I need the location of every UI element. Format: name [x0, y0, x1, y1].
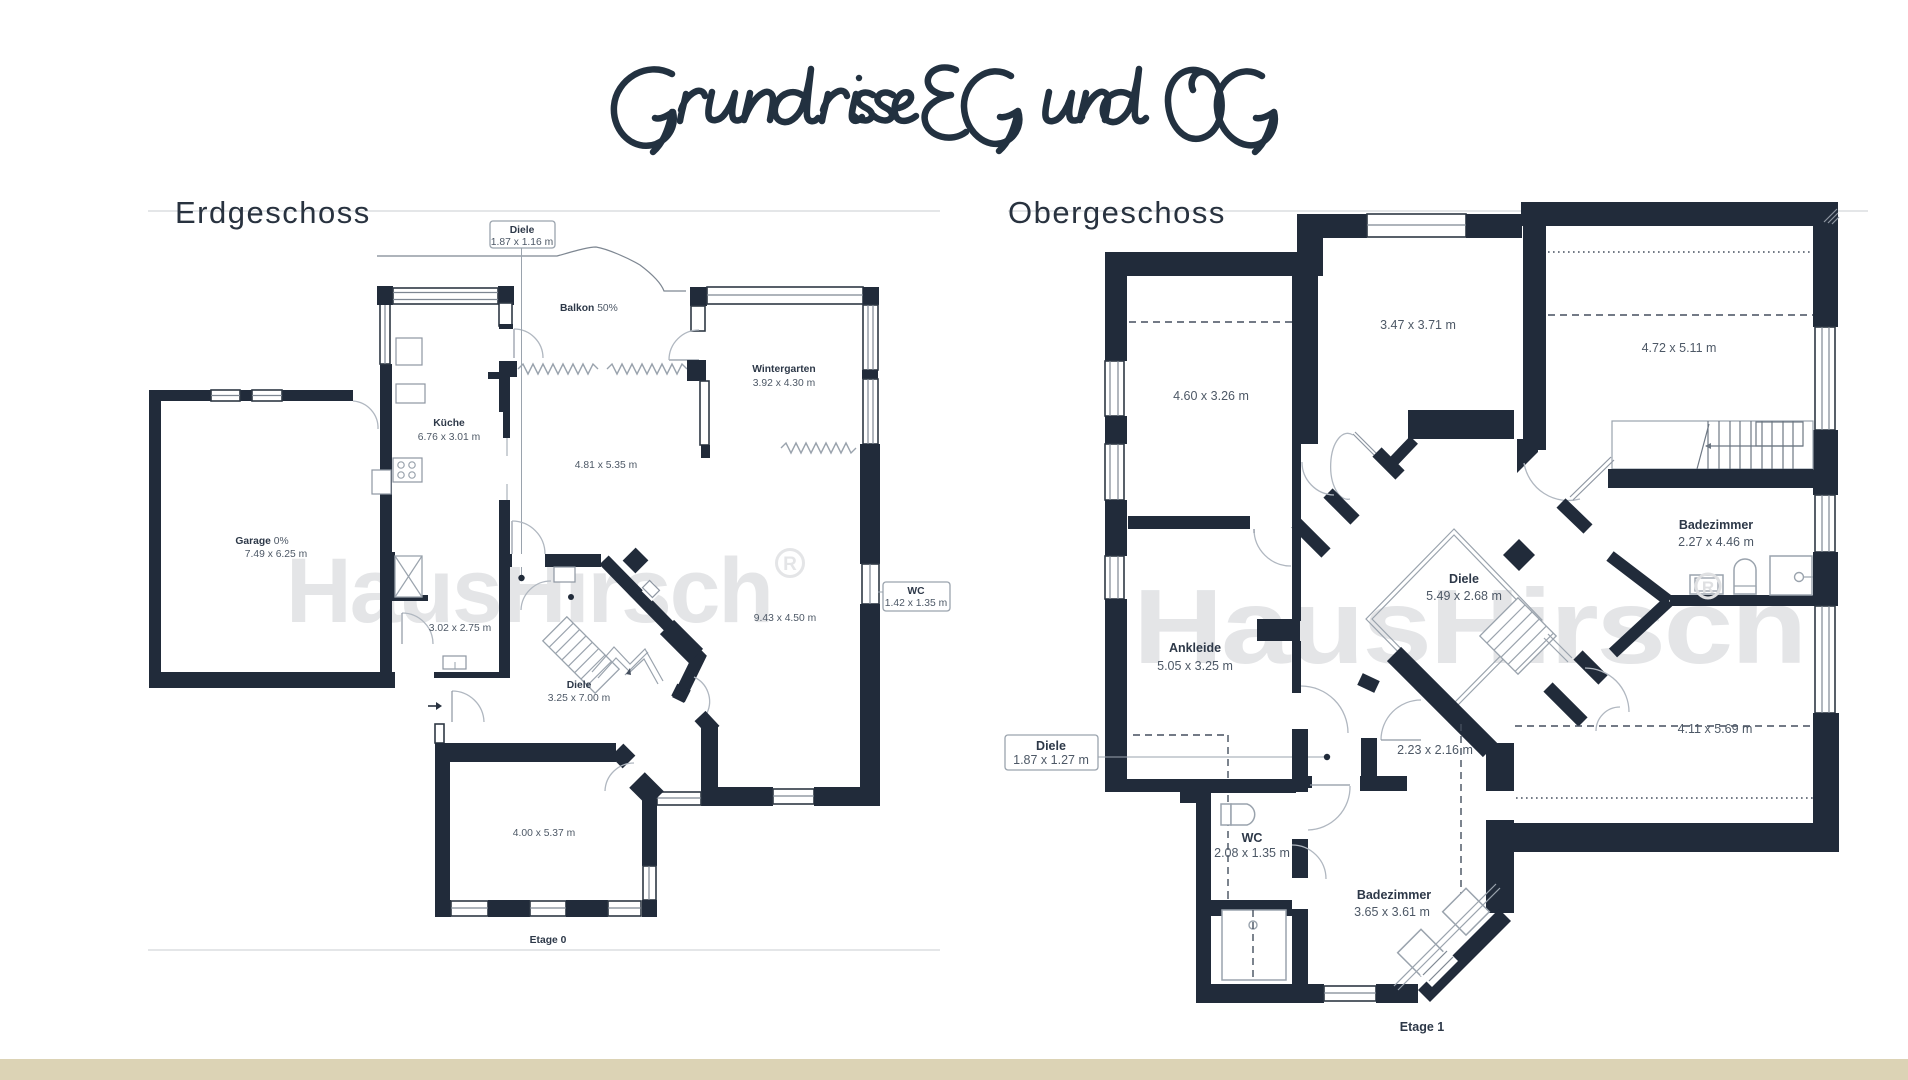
svg-text:4.60 x 3.26 m: 4.60 x 3.26 m	[1173, 389, 1249, 403]
svg-text:Balkon 50%: Balkon 50%	[560, 303, 618, 314]
svg-text:Ankleide: Ankleide	[1169, 641, 1221, 655]
svg-text:4.11 x 5.69 m: 4.11 x 5.69 m	[1678, 722, 1753, 736]
svg-text:3.02 x 2.75 m: 3.02 x 2.75 m	[429, 623, 491, 634]
svg-text:1.42 x 1.35 m: 1.42 x 1.35 m	[885, 598, 947, 609]
svg-text:Küche: Küche	[433, 418, 465, 429]
svg-text:7.49 x 6.25 m: 7.49 x 6.25 m	[245, 549, 307, 560]
svg-text:3.25 x 7.00 m: 3.25 x 7.00 m	[548, 693, 610, 704]
svg-text:3.65 x 3.61 m: 3.65 x 3.61 m	[1354, 905, 1430, 919]
svg-text:4.81 x 5.35 m: 4.81 x 5.35 m	[575, 460, 637, 471]
svg-text:Garage 0%: Garage 0%	[235, 536, 288, 547]
svg-text:Diele: Diele	[567, 680, 592, 691]
svg-text:WC: WC	[1242, 831, 1263, 845]
svg-text:3.92 x 4.30 m: 3.92 x 4.30 m	[753, 378, 815, 389]
svg-text:3.47 x 3.71 m: 3.47 x 3.71 m	[1380, 318, 1456, 332]
svg-text:2.27 x 4.46 m: 2.27 x 4.46 m	[1678, 535, 1754, 549]
svg-text:Diele: Diele	[1036, 739, 1066, 753]
svg-text:9.43 x 4.50 m: 9.43 x 4.50 m	[754, 613, 816, 624]
svg-text:Wintergarten: Wintergarten	[752, 364, 815, 375]
svg-text:1.87 x 1.27 m: 1.87 x 1.27 m	[1013, 753, 1089, 767]
svg-text:WC: WC	[907, 586, 925, 597]
svg-text:6.76 x 3.01 m: 6.76 x 3.01 m	[418, 432, 480, 443]
svg-text:R: R	[1702, 578, 1714, 597]
svg-text:5.05 x 3.25 m: 5.05 x 3.25 m	[1157, 659, 1233, 673]
svg-text:Etage 1: Etage 1	[1400, 1020, 1445, 1034]
svg-text:4.72 x 5.11 m: 4.72 x 5.11 m	[1642, 341, 1717, 355]
svg-text:Diele: Diele	[510, 225, 535, 236]
svg-text:Obergeschoss: Obergeschoss	[1008, 195, 1226, 230]
svg-text:Diele: Diele	[1449, 572, 1479, 586]
svg-text:2.08 x 1.35 m: 2.08 x 1.35 m	[1214, 846, 1290, 860]
svg-text:Erdgeschoss: Erdgeschoss	[175, 195, 371, 230]
svg-text:Badezimmer: Badezimmer	[1679, 518, 1753, 532]
svg-text:R: R	[783, 554, 797, 575]
svg-text:Etage 0: Etage 0	[530, 935, 567, 946]
svg-text:4.00 x 5.37 m: 4.00 x 5.37 m	[513, 828, 575, 839]
svg-text:5.49 x 2.68 m: 5.49 x 2.68 m	[1426, 589, 1502, 603]
svg-text:Badezimmer: Badezimmer	[1357, 888, 1431, 902]
svg-text:1.87 x 1.16 m: 1.87 x 1.16 m	[491, 237, 553, 248]
